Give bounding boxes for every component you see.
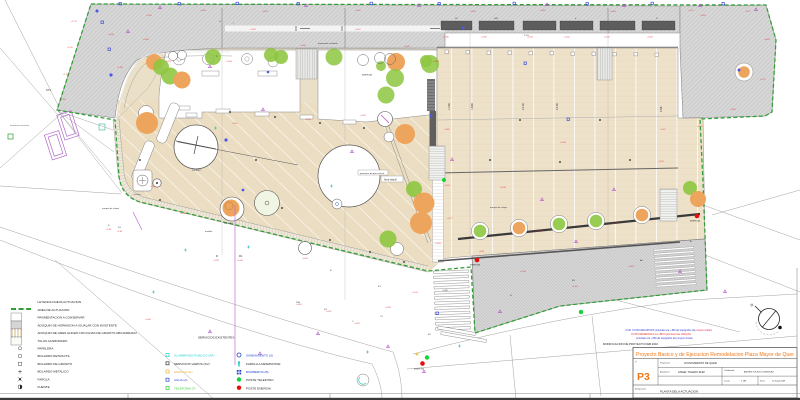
- svg-text:+4.28: +4.28: [250, 29, 256, 31]
- svg-text:+4.23: +4.23: [262, 11, 268, 13]
- svg-text:+4.20: +4.20: [200, 10, 206, 12]
- svg-text:ENERGIA: ENERGIA: [470, 264, 480, 267]
- svg-text:nº: nº: [635, 361, 637, 364]
- svg-text:+0.30: +0.30: [535, 231, 541, 233]
- svg-text:+0.49: +0.49: [302, 258, 308, 260]
- svg-text:+4.44: +4.44: [296, 304, 302, 306]
- svg-text:2.47%: 2.47%: [556, 102, 559, 110]
- svg-text:+4.63: +4.63: [610, 11, 616, 13]
- svg-text:AREA DE ACTUACION: AREA DE ACTUACION: [38, 308, 70, 312]
- svg-text:+4.71: +4.71: [688, 10, 694, 12]
- svg-text:SANEAMIENTO (S): SANEAMIENTO (S): [246, 354, 273, 358]
- svg-text:+0.26: +0.26: [412, 292, 418, 294]
- svg-text:+4.28: +4.28: [385, 307, 391, 309]
- svg-text:FUENTE: FUENTE: [38, 385, 50, 389]
- svg-text:Arquitecto:: Arquitecto:: [660, 370, 670, 373]
- svg-text:BOLARDO RETRACTIL: BOLARDO RETRACTIL: [38, 354, 71, 358]
- svg-text:1.60%: 1.60%: [471, 102, 474, 110]
- svg-text:+0.80: +0.80: [443, 37, 449, 39]
- svg-text:+0.49: +0.49: [117, 231, 123, 233]
- svg-text:POSTE TELEFONO: POSTE TELEFONO: [246, 378, 274, 382]
- svg-text:+0.69: +0.69: [730, 109, 736, 111]
- svg-text:ENERGIA: ENERGIA: [414, 368, 424, 371]
- svg-text:PAVIMENTACION A CONSERVAR: PAVIMENTACION A CONSERVAR: [38, 316, 86, 320]
- svg-text:perimetro de pista actual: perimetro de pista actual: [360, 172, 384, 175]
- svg-text:pavimento realizado: pavimento realizado: [318, 42, 338, 45]
- svg-text:P3: P3: [637, 371, 650, 383]
- svg-text:+0.50: +0.50: [433, 61, 439, 63]
- svg-text:+0.45: +0.45: [604, 37, 610, 39]
- svg-text:+4.33: +4.33: [360, 115, 366, 117]
- svg-text:2.21%: 2.21%: [522, 102, 525, 110]
- svg-text:+0.40: +0.40: [564, 37, 570, 39]
- svg-text:ANGEL TOLEDO RUIZ: ANGEL TOLEDO RUIZ: [678, 370, 705, 374]
- svg-text:ANDRES TOLEDO DOMINGUEZ: ANDRES TOLEDO DOMINGUEZ: [744, 371, 775, 374]
- svg-text:ENERGIA (E): ENERGIA (E): [174, 370, 192, 374]
- svg-text:+1.70: +1.70: [71, 21, 77, 23]
- svg-text:SERVICIOS EXISTENTES: SERVICIOS EXISTENTES: [198, 336, 234, 340]
- svg-text:1.15%: 1.15%: [448, 102, 451, 110]
- svg-text:AYUNTAMIENTO DE QUER: AYUNTAMIENTO DE QUER: [684, 361, 717, 365]
- svg-text:PLANTA DELA ACTUACION: PLANTA DELA ACTUACION: [660, 390, 698, 394]
- svg-text:+4.23: +4.23: [305, 119, 311, 121]
- svg-text:+0.83: +0.83: [764, 39, 770, 41]
- svg-text:Area infantil: Area infantil: [384, 178, 397, 181]
- svg-text:ST4: ST4: [46, 88, 51, 92]
- svg-text:+4.88: +4.88: [442, 290, 448, 292]
- svg-text:+4.36: +4.36: [226, 61, 232, 63]
- svg-text:POSTE ENERGIA: POSTE ENERGIA: [246, 386, 272, 390]
- svg-text:+0.72: +0.72: [697, 126, 703, 128]
- svg-text:+4.18: +4.18: [146, 15, 152, 17]
- svg-text:designacion:: designacion:: [635, 389, 647, 391]
- svg-text:+1.96: +1.96: [117, 67, 123, 69]
- svg-text:+1.50: +1.50: [63, 74, 69, 76]
- svg-text:+2.09: +2.09: [520, 271, 526, 273]
- svg-text:ENERGIA: ENERGIA: [362, 74, 372, 77]
- svg-text:+4.41: +4.41: [355, 10, 361, 12]
- svg-text:BOLARDO DE GRANITO: BOLARDO DE GRANITO: [38, 362, 73, 366]
- svg-text:+1.46: +1.46: [60, 99, 66, 101]
- svg-text:+0.63: +0.63: [647, 37, 653, 39]
- svg-text:10 mayo 2009: 10 mayo 2009: [772, 381, 786, 383]
- svg-text:SERVICIOS VARIOS (SV): SERVICIOS VARIOS (SV): [174, 362, 210, 366]
- svg-text:D1: D1: [239, 254, 243, 258]
- svg-text:+0.49: +0.49: [237, 260, 243, 262]
- svg-text:fontaneria existente: fontaneria existente: [10, 124, 30, 127]
- svg-text:AGUA (A): AGUA (A): [174, 378, 187, 382]
- svg-text:ENERGIA: ENERGIA: [690, 220, 700, 223]
- svg-text:cenador: cenador: [224, 222, 233, 225]
- svg-text:+4.47: +4.47: [355, 29, 361, 31]
- svg-text:+4.05: +4.05: [143, 39, 149, 41]
- svg-text:+4.62: +4.62: [470, 11, 476, 13]
- svg-text:1:180: 1:180: [741, 381, 747, 383]
- svg-text:+0.46: +0.46: [150, 186, 156, 188]
- svg-text:FAROLA: FAROLA: [38, 377, 51, 381]
- svg-text:PAPELERA: PAPELERA: [38, 347, 55, 351]
- svg-text:+0.64: +0.64: [435, 243, 441, 245]
- svg-text:-0.90: -0.90: [479, 251, 485, 253]
- svg-text:escala: escala: [724, 381, 731, 383]
- svg-text:+4.67: +4.67: [326, 311, 332, 313]
- svg-text:mueble: mueble: [205, 231, 213, 233]
- svg-text:+4.28: +4.28: [165, 61, 171, 63]
- svg-text:+4.77: +4.77: [745, 11, 751, 13]
- svg-text:+0.26: +0.26: [612, 223, 618, 225]
- svg-text:cenador: cenador: [133, 193, 141, 196]
- svg-text:+0.48: +0.48: [145, 319, 151, 321]
- svg-text:D: D: [216, 254, 218, 258]
- svg-text:+0.65: +0.65: [404, 46, 410, 48]
- svg-text:Proyectad:: Proyectad:: [660, 362, 670, 365]
- svg-text:+4.32: +4.32: [354, 323, 360, 325]
- svg-text:tronque de chapa: tronque de chapa: [102, 207, 120, 210]
- svg-text:+0.52: +0.52: [444, 185, 450, 187]
- svg-text:+0.65: +0.65: [700, 15, 706, 17]
- svg-text:+3.28: +3.28: [213, 260, 219, 262]
- svg-text:+4.67: +4.67: [540, 10, 546, 12]
- svg-text:COTAS REFERIDAS A LA +883.9 (t: COTAS REFERIDAS A LA +883.9 (teoricament…: [631, 333, 692, 336]
- svg-text:ALUMBRADO PUBLICO (AP): ALUMBRADO PUBLICO (AP): [174, 354, 214, 358]
- svg-text:Colaborador:: Colaborador:: [724, 369, 735, 372]
- svg-text:G: G: [219, 21, 221, 23]
- svg-text:ADOQUIN DE GRES ALIKER CON FAJ: ADOQUIN DE GRES ALIKER CON FAJAS DE GRAN…: [38, 331, 138, 335]
- svg-text:+0.32: +0.32: [658, 161, 664, 163]
- svg-text:+1.43: +1.43: [572, 286, 578, 288]
- svg-text:+0.60: +0.60: [180, 213, 186, 215]
- svg-text:TELEFONIA (T): TELEFONIA (T): [174, 386, 196, 390]
- svg-text:+0.08: +0.08: [560, 142, 566, 144]
- svg-text:+4.60: +4.60: [300, 45, 306, 47]
- svg-text:+4.05: +4.05: [108, 34, 114, 36]
- svg-text:+4.43: +4.43: [628, 266, 634, 268]
- svg-text:+4.15: +4.15: [232, 123, 238, 125]
- svg-text:+0.06: +0.06: [500, 187, 506, 189]
- svg-text:MODIFICACION DE PROYECTO FEB 2: MODIFICACION DE PROYECTO FEB 2010: [603, 342, 658, 346]
- svg-text:cenador: cenador: [192, 169, 201, 172]
- svg-text:+3.20: +3.20: [106, 229, 112, 231]
- svg-text:+1.55: +1.55: [67, 47, 73, 49]
- svg-text:(referidas a la + 880 del topo: (referidas a la + 880 del topografico de…: [636, 337, 693, 340]
- svg-text:LEYENDA NUEVA ACTUACION: LEYENDA NUEVA ACTUACION: [38, 300, 82, 304]
- svg-text:+0.71: +0.71: [760, 79, 766, 81]
- svg-text:+0.90: +0.90: [481, 37, 487, 39]
- svg-text:TALUS AJARDINADO: TALUS AJARDINADO: [38, 339, 69, 343]
- svg-text:ADOQUIN DE HORMIGON A IGUALAR: ADOQUIN DE HORMIGON A IGUALAR CON EXISTE…: [38, 323, 117, 327]
- svg-text:+0.71: +0.71: [447, 218, 453, 220]
- svg-text:BOMBEROS (B): BOMBEROS (B): [246, 370, 269, 374]
- svg-text:FAROLA A DESMONTAR: FAROLA A DESMONTAR: [246, 362, 281, 366]
- svg-text:+0.81: +0.81: [444, 129, 450, 131]
- svg-text:2.1%: 2.1%: [524, 35, 529, 37]
- svg-text:+5.08 COTAS DEFINITIVAS (refe: +5.08 COTAS DEFINITIVAS (referidas a la …: [625, 329, 712, 332]
- svg-text:3.5%: 3.5%: [660, 106, 663, 112]
- svg-text:Proyecto Basico y de Ejecucion: Proyecto Basico y de Ejecucion Remodelac…: [636, 352, 794, 358]
- svg-text:tronque de chapa: tronque de chapa: [490, 206, 508, 209]
- svg-text:BOLARDO METALICO: BOLARDO METALICO: [38, 370, 70, 374]
- svg-text:+0.57: +0.57: [660, 129, 666, 131]
